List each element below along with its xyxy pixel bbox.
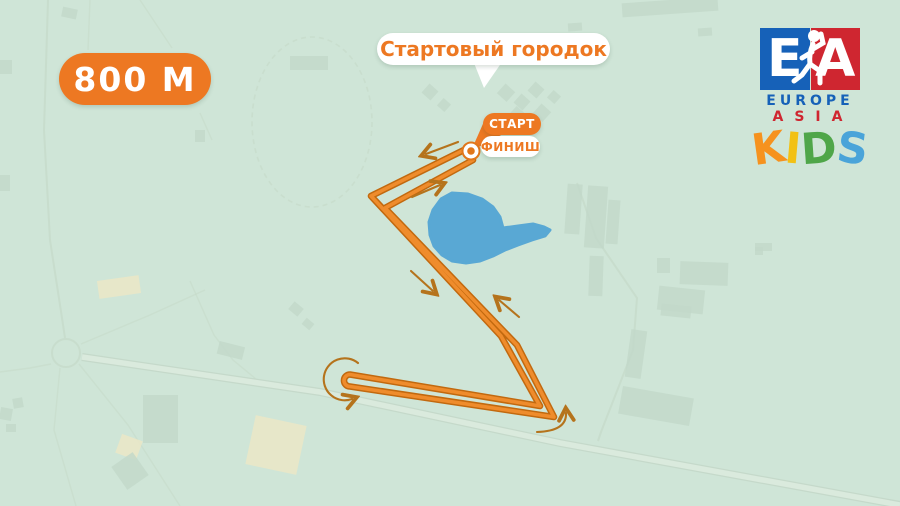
event-logo: E A EUROPE ASIA KIDS <box>752 28 868 172</box>
finish-badge: ФИНИШ <box>481 136 540 157</box>
start-label: СТАРТ <box>489 117 535 131</box>
race-route <box>344 149 554 417</box>
start-area-callout-label: Стартовый городок <box>380 37 607 61</box>
kids-letter-s: S <box>834 124 870 173</box>
start-badge: СТАРТ <box>483 113 541 135</box>
distance-badge-label: 800 M <box>73 60 196 99</box>
finish-label: ФИНИШ <box>481 140 540 154</box>
distance-badge: 800 M <box>59 53 211 105</box>
runner-icon <box>787 23 837 93</box>
race-course-map: 800 M Стартовый городок СТАРТ ФИНИШ E A <box>0 0 900 506</box>
pond <box>429 193 550 263</box>
logo-word-kids: KIDS <box>752 126 868 172</box>
logo-monogram: E A <box>760 28 860 90</box>
kids-letter-d: D <box>800 125 839 173</box>
logo-word-europe: EUROPE <box>752 93 868 109</box>
start-area-callout: Стартовый городок <box>377 33 610 65</box>
start-finish-marker <box>463 143 480 160</box>
